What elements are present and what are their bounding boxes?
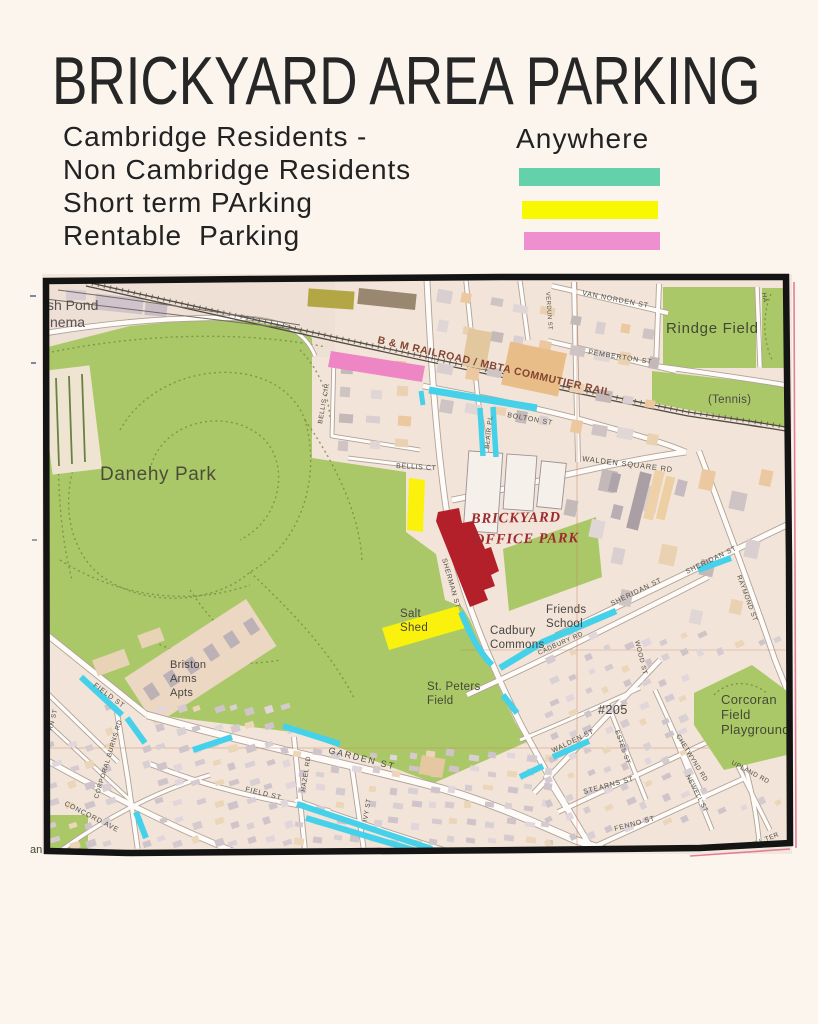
svg-text:an: an <box>30 844 42 856</box>
